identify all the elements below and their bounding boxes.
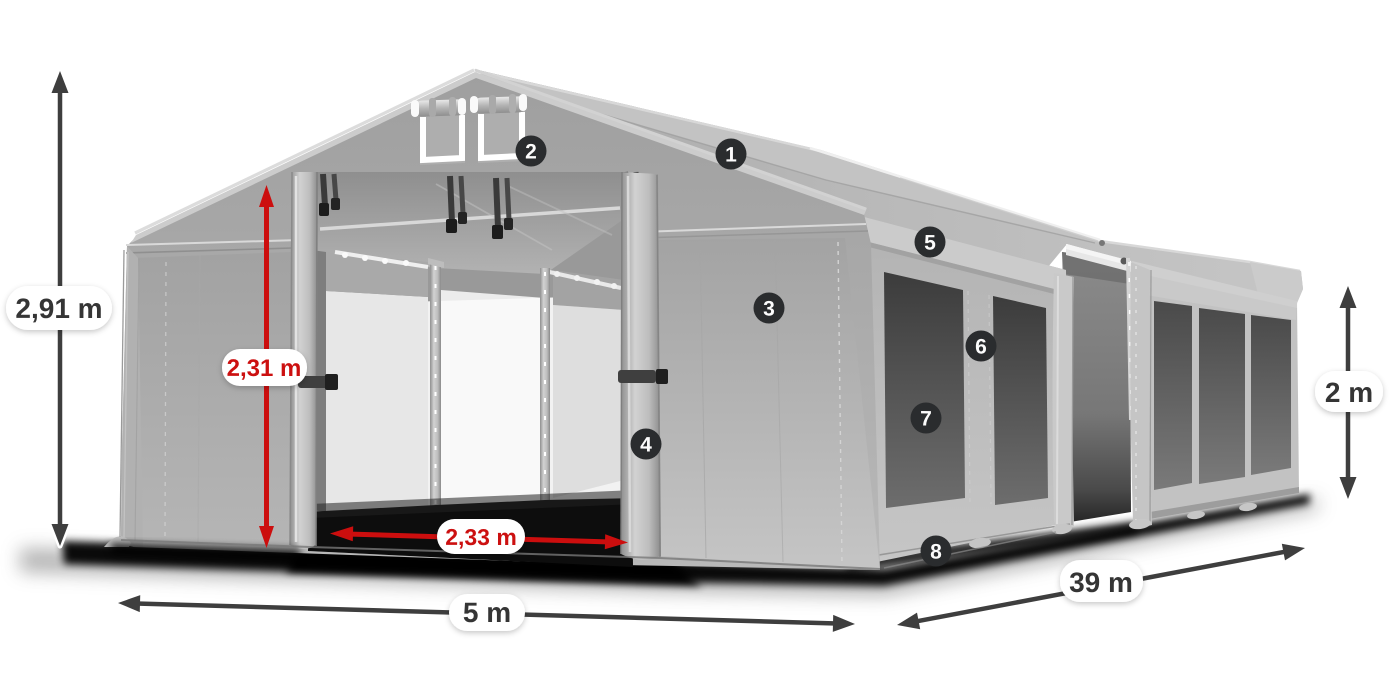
svg-text:3: 3: [763, 297, 775, 320]
svg-text:2: 2: [525, 140, 537, 163]
svg-text:8: 8: [930, 540, 942, 563]
svg-text:2,33 m: 2,33 m: [445, 524, 517, 550]
svg-text:2,91 m: 2,91 m: [15, 293, 102, 324]
svg-text:5 m: 5 m: [463, 597, 511, 628]
svg-text:4: 4: [640, 433, 652, 456]
svg-text:39 m: 39 m: [1069, 567, 1133, 598]
svg-text:6: 6: [975, 335, 987, 358]
svg-text:2 m: 2 m: [1325, 377, 1373, 408]
svg-text:7: 7: [920, 407, 932, 430]
svg-text:1: 1: [725, 143, 737, 166]
svg-text:2,31 m: 2,31 m: [227, 355, 302, 382]
svg-text:5: 5: [924, 231, 936, 254]
